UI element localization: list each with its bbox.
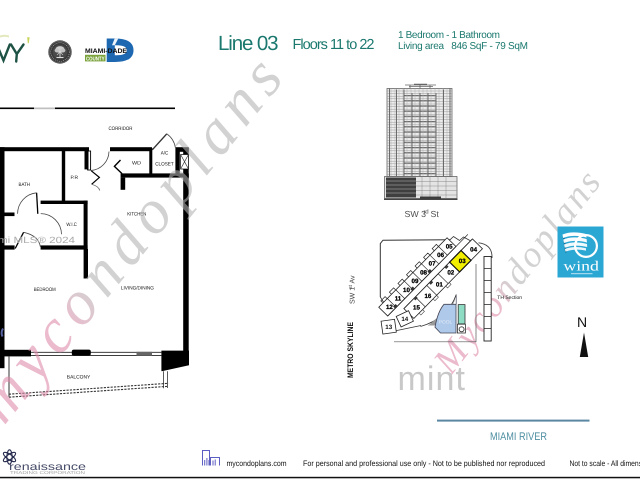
svg-text:N: N: [577, 314, 587, 330]
svg-text:04: 04: [470, 246, 477, 253]
svg-text:05: 05: [446, 243, 453, 250]
svg-text:mycondoplans.com: mycondoplans.com: [227, 459, 287, 468]
svg-text:13: 13: [385, 324, 392, 331]
svg-text:mint: mint: [398, 360, 467, 398]
svg-text:METRO SKYLINE: METRO SKYLINE: [346, 321, 355, 378]
svg-text:08: 08: [420, 269, 427, 276]
svg-text:16: 16: [424, 293, 431, 300]
svg-text:TH Section: TH Section: [497, 295, 522, 301]
svg-text:wind: wind: [563, 260, 599, 275]
svg-text:St: St: [431, 209, 440, 219]
svg-text:07: 07: [429, 261, 436, 268]
svg-text:02: 02: [447, 270, 454, 277]
svg-text:12: 12: [386, 304, 393, 311]
svg-text:06: 06: [437, 252, 444, 259]
svg-text:01: 01: [436, 281, 443, 288]
svg-text:MIAMI-DADE: MIAMI-DADE: [85, 48, 128, 55]
svg-text:MIAMI RIVER: MIAMI RIVER: [490, 431, 547, 443]
svg-text:TRADING CORPORATION: TRADING CORPORATION: [10, 470, 85, 475]
svg-text:09: 09: [412, 278, 419, 285]
svg-text:P.R: P.R: [71, 175, 79, 181]
svg-text:Floors 11 to 22: Floors 11 to 22: [293, 37, 375, 53]
svg-text:1 Bedroom - 1 Bathroom: 1 Bedroom - 1 Bathroom: [398, 30, 500, 41]
svg-text:BALCONY: BALCONY: [67, 374, 91, 380]
svg-text:For personal and professional: For personal and professional use only -…: [303, 459, 545, 468]
svg-text:Not to scale - All dimensions: Not to scale - All dimensions: [570, 459, 640, 468]
svg-text:15: 15: [413, 305, 420, 312]
svg-text:11: 11: [395, 295, 402, 302]
svg-text:BATH: BATH: [19, 182, 31, 188]
svg-text:10: 10: [403, 287, 410, 294]
svg-text:03: 03: [459, 258, 466, 265]
svg-text:14: 14: [401, 316, 408, 323]
svg-text:W.I.C: W.I.C: [66, 222, 77, 228]
svg-text:COUNTY: COUNTY: [86, 56, 105, 62]
svg-text:CORRIDOR: CORRIDOR: [109, 126, 133, 132]
svg-text:rd: rd: [424, 209, 429, 216]
svg-text:st: st: [348, 285, 354, 290]
svg-text:WD: WD: [132, 160, 141, 166]
svg-text:Living area 846 SqF - 79 SqM: Living area 846 SqF - 79 SqM: [398, 41, 528, 52]
svg-text:Av: Av: [350, 275, 357, 284]
svg-text:POOL: POOL: [439, 320, 453, 326]
svg-text:mi MLS® 2024: mi MLS® 2024: [0, 235, 75, 245]
